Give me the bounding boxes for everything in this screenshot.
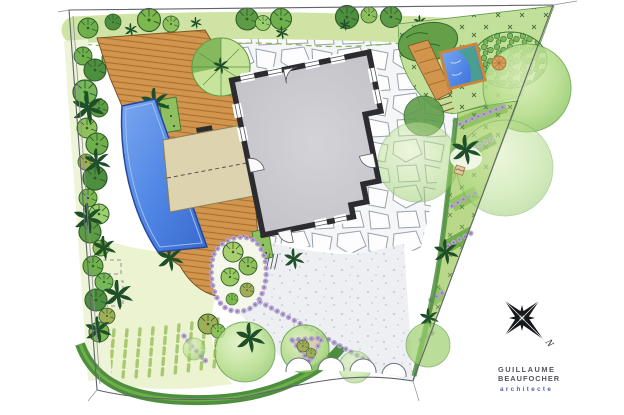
architect-title: architecte [500, 386, 553, 393]
architect-name-line2: BEAUFOCHER [498, 374, 560, 383]
north-indicator: N [542, 337, 556, 351]
garden-plan-drawing: N GUILLAUME BEAUFOCHER architecte [0, 0, 624, 415]
garden-plan-page: N GUILLAUME BEAUFOCHER architecte [0, 0, 624, 415]
architect-name-line1: GUILLAUME [498, 365, 555, 374]
compass-rose-icon: N [488, 284, 560, 356]
parasol-table [492, 56, 506, 70]
tree-canopy [378, 122, 458, 202]
tree-canopy [406, 323, 450, 367]
signature: GUILLAUME BEAUFOCHER architecte [498, 365, 560, 393]
pond [440, 44, 485, 89]
tree-canopy [215, 322, 275, 382]
tree-canopy [183, 338, 205, 360]
